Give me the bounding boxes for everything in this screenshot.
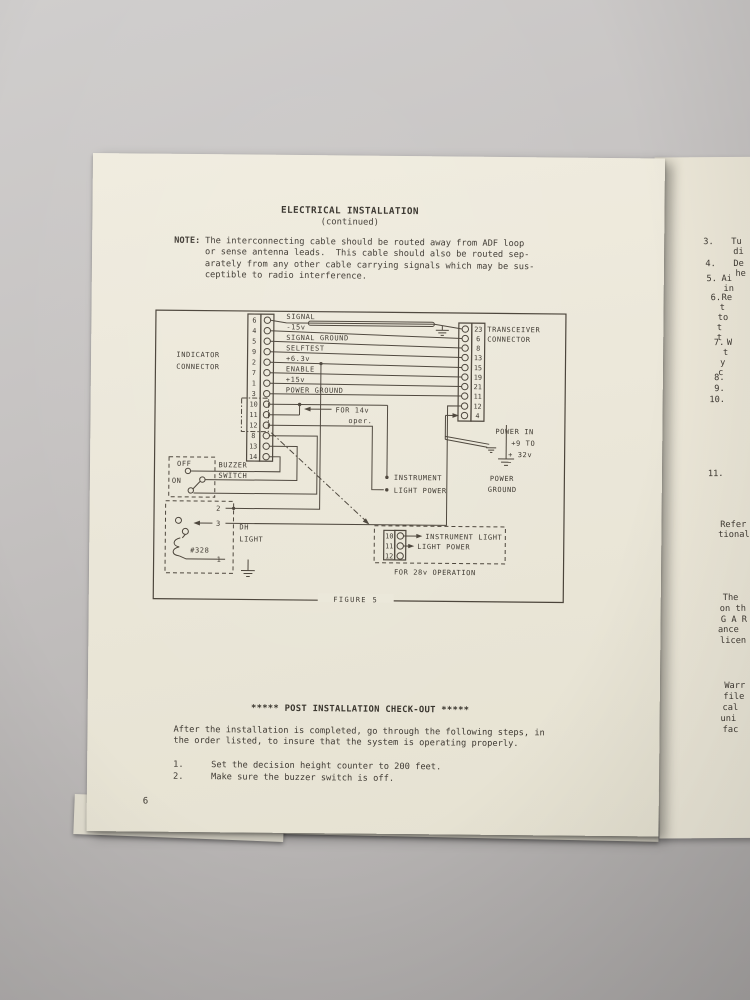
dh-pin: 3: [216, 520, 221, 528]
right-page-text-fragment: 4.: [705, 259, 716, 269]
indicator-connector: 6 4 5 9 2 7 1 3 10 11 12 8 13 14: [247, 314, 274, 461]
dh-chassis-ground: [241, 559, 255, 576]
dh-light-label: DH: [239, 523, 249, 531]
right-page-text-fragment: W: [727, 338, 732, 348]
note-label: NOTE:: [174, 236, 200, 248]
svg-text:oper.: oper.: [348, 417, 372, 425]
power-ground-label: POWER: [490, 475, 514, 483]
transceiver-pin: 19: [474, 374, 482, 382]
indicator-connector-label: CONNECTOR: [176, 363, 220, 371]
step-text: Make sure the buzzer switch is off.: [211, 772, 394, 784]
indicator-pin: 10: [249, 401, 257, 409]
transceiver-pin: 23: [474, 326, 482, 334]
indicator-pin: 4: [252, 327, 256, 335]
28v-operation-box: 10 11 12 INSTRUMENT LIGHT LIGHT POWER: [374, 526, 505, 564]
for-14v-callout: FOR 14v oper.: [304, 406, 373, 425]
right-page-text-fragment: uni: [721, 714, 737, 724]
right-page-text-fragment: Tu: [731, 237, 742, 247]
wire-label: SIGNAL: [286, 313, 315, 321]
right-page-text-fragment: di: [733, 247, 744, 257]
transceiver-pin: 12: [473, 403, 481, 411]
power-in-label: + 32v: [508, 451, 532, 459]
right-page-text-fragment: 3.: [703, 237, 714, 247]
figure-caption: FIGURE 5: [333, 596, 378, 604]
indicator-pin: 2: [252, 359, 256, 367]
transceiver-pin: 15: [474, 364, 482, 372]
transceiver-pin: 21: [474, 383, 482, 391]
dh-light: 2 3 1 #328: [165, 501, 234, 574]
right-page-text-fragment: 9.: [714, 384, 725, 394]
right-page-text-fragment: cal: [722, 703, 738, 713]
28v-pin: 10: [385, 532, 393, 540]
step-number: 1.: [173, 760, 184, 770]
indicator-pin: 6: [252, 317, 256, 325]
right-page-text-fragment: fac: [723, 725, 739, 735]
buzzer-on-label: ON: [172, 477, 182, 485]
wire-label: -15v: [286, 323, 305, 331]
wire-label: +6.3v: [286, 355, 310, 363]
dh-bulb-part-number: #328: [190, 546, 209, 554]
right-page: 3. Tu di 4. De he 5. Ai in 6. Re t to t …: [655, 157, 750, 839]
transceiver-connector: 23 6 8 13 15 19 21 11 12 4: [458, 323, 485, 421]
power-in-label: POWER IN: [495, 428, 534, 436]
right-page-text-fragment: y: [720, 358, 725, 368]
dh-pin3-wire: [225, 404, 461, 526]
figure-5-wiring-diagram: INDICATOR CONNECTOR 6 4 5 9: [151, 308, 569, 605]
wire-label: POWER GROUND: [286, 386, 344, 395]
right-page-text-fragment: Warr: [724, 681, 745, 691]
step-text: Set the decision height counter to 200 f…: [211, 760, 441, 772]
right-page-text-fragment: file: [723, 692, 744, 702]
right-page-text-fragment: licen: [720, 636, 746, 646]
dh-pin: 2: [216, 505, 221, 513]
right-page-text-fragment: tional: [718, 530, 749, 540]
28v-pin: 11: [385, 542, 393, 550]
right-page-text-fragment: ance: [718, 625, 739, 635]
right-page-text-fragment: 8.: [714, 373, 725, 383]
right-page-text-fragment: G A R: [721, 615, 747, 625]
transceiver-pin: 6: [476, 335, 480, 343]
right-page-text-fragment: t: [720, 303, 725, 313]
right-page-text-fragment: he: [735, 269, 746, 279]
right-page-text-fragment: Ai: [721, 274, 732, 284]
page-subtitle: (continued): [172, 216, 527, 229]
right-page-text-fragment: Re: [722, 293, 733, 303]
instrument-light-power-label: LIGHT POWER: [394, 487, 447, 496]
buzzer-switch: OFF ON: [169, 457, 215, 497]
indicator-pin: 13: [249, 443, 257, 451]
page-number: 6: [143, 797, 149, 807]
transceiver-pin: 13: [474, 354, 482, 362]
step-number: 2.: [173, 772, 184, 782]
indicator-pin: 11: [249, 411, 257, 419]
note-paragraph: The interconnecting cable should be rout…: [205, 236, 535, 285]
indicator-pin: 5: [252, 338, 256, 346]
right-page-text-fragment: The: [723, 593, 739, 603]
buzzer-switch-label: BUZZER: [218, 461, 247, 469]
wire-label: ENABLE: [286, 365, 315, 373]
14v-jumper: [269, 403, 387, 477]
transceiver-pin: 4: [475, 412, 479, 420]
checkout-step: 1. Set the decision height counter to 20…: [93, 153, 665, 158]
indicator-pin: 14: [249, 453, 257, 461]
right-page-text-fragment: 11.: [708, 469, 724, 479]
wire-label: SIGNAL GROUND: [286, 334, 349, 343]
power-ground-label: GROUND: [488, 486, 517, 494]
28v-wire-label: LIGHT POWER: [417, 543, 470, 552]
right-page-text-fragment: 6.: [711, 293, 722, 303]
28v-pin: 12: [385, 552, 393, 560]
right-page-text-fragment: t: [723, 348, 728, 358]
28v-wire-label: INSTRUMENT LIGHT: [425, 533, 502, 542]
power-in-label: +9 TO: [511, 440, 535, 448]
indicator-pin: 8: [251, 432, 255, 440]
wire-label: SELFTEST: [286, 344, 325, 352]
light-power-wire: [269, 425, 389, 491]
transceiver-connector-label: CONNECTOR: [487, 336, 531, 344]
indicator-pin: 9: [252, 348, 256, 356]
indicator-pin: 12: [249, 422, 257, 430]
indicator-pin: 3: [252, 390, 256, 398]
buzzer-off-label: OFF: [177, 460, 192, 468]
indicator-pin: 7: [252, 369, 256, 377]
manual-page: ELECTRICAL INSTALLATION (continued) NOTE…: [86, 153, 664, 836]
right-page-text-fragment: 5.: [706, 274, 717, 284]
checkout-heading: ***** POST INSTALLATION CHECK-OUT *****: [183, 703, 538, 716]
right-page-text-fragment: on th: [720, 604, 746, 614]
right-page-text-fragment: t: [717, 323, 722, 333]
transceiver-connector-label: TRANSCEIVER: [487, 326, 540, 335]
wire-label: +15v: [286, 376, 305, 384]
transceiver-pin: 8: [476, 345, 480, 353]
transceiver-pin: 11: [474, 393, 482, 401]
28v-operation-caption: FOR 28v OPERATION: [394, 568, 476, 577]
dh-light-label: LIGHT: [239, 535, 263, 543]
checkout-paragraph: After the installation is completed, go …: [173, 725, 545, 751]
right-page-text-fragment: to: [718, 313, 729, 323]
right-page-text-fragment: De: [733, 259, 744, 269]
right-page-text-fragment: 7.: [714, 338, 725, 348]
svg-text:FOR 14v: FOR 14v: [336, 406, 370, 414]
indicator-pin: 1: [252, 380, 256, 388]
instrument-light-power-label: INSTRUMENT: [394, 474, 442, 482]
indicator-connector-label: INDICATOR: [176, 351, 220, 359]
right-page-text-fragment: Refer: [720, 520, 746, 530]
right-page-text-fragment: 10.: [709, 395, 725, 405]
buzzer-switch-label: SWITCH: [218, 472, 247, 480]
checkout-step: 2. Make sure the buzzer switch is off.: [93, 153, 665, 158]
